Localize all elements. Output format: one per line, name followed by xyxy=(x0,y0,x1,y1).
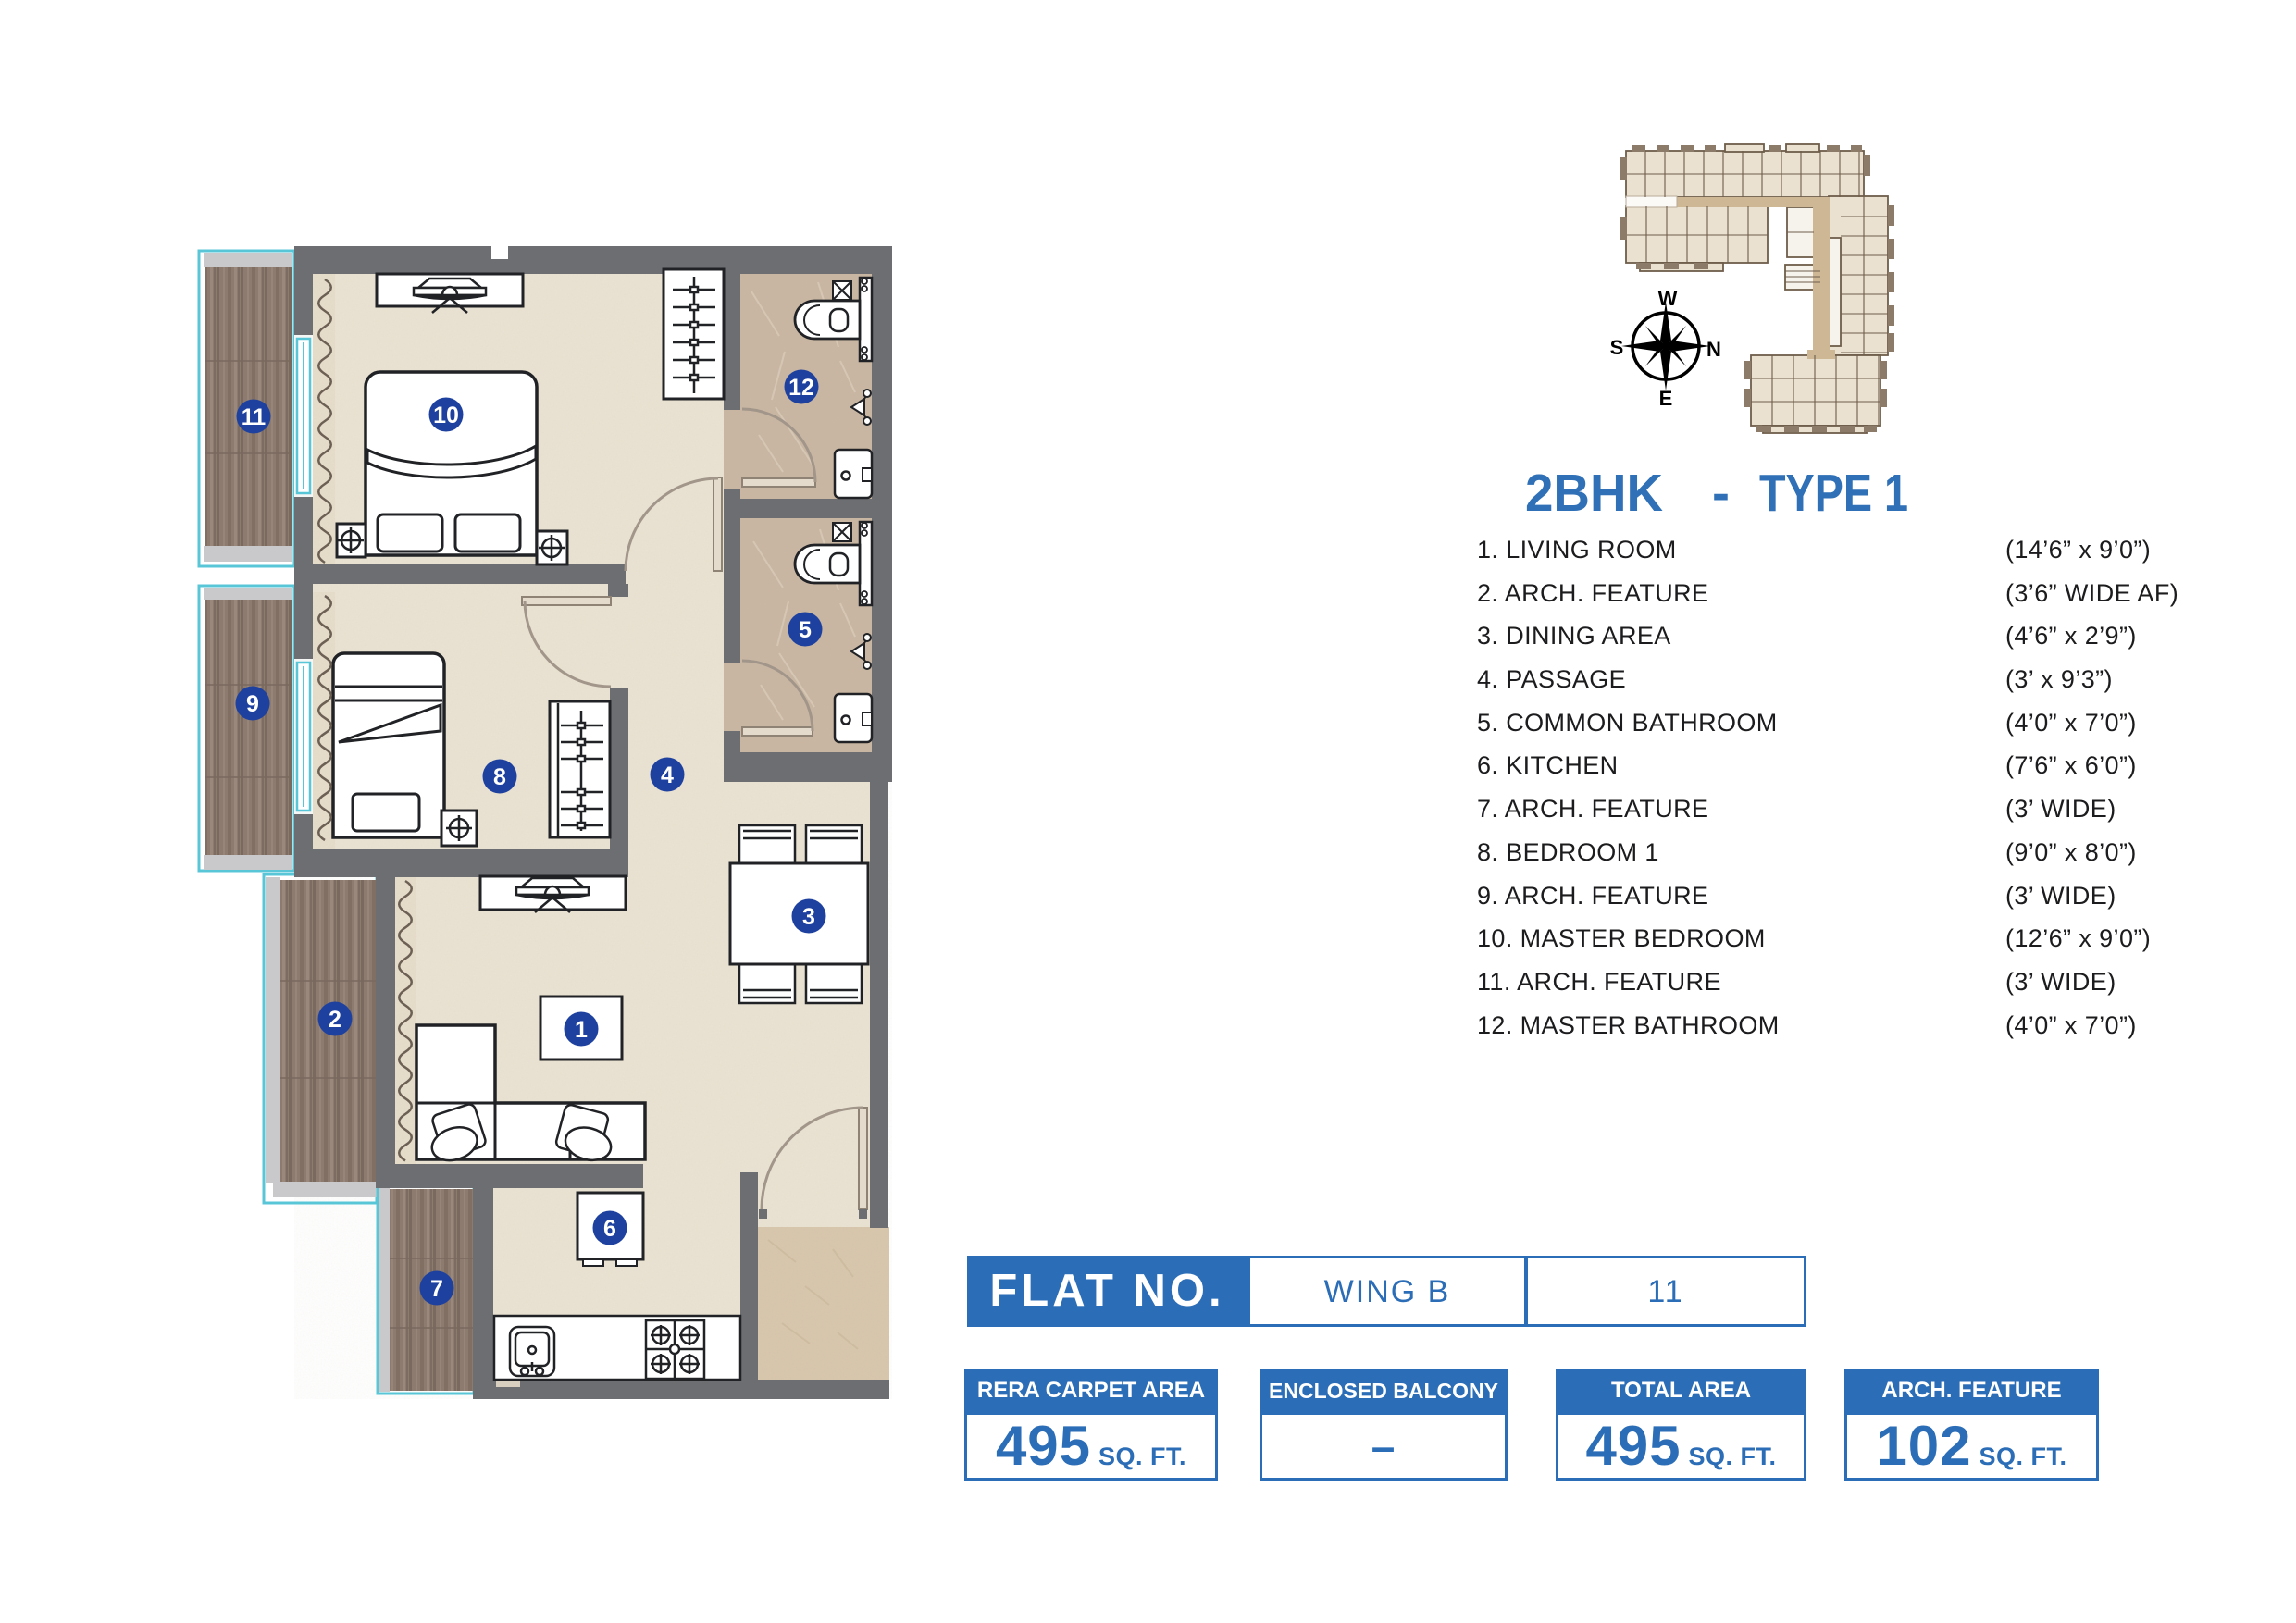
svg-text:5: 5 xyxy=(799,617,812,643)
svg-text:N: N xyxy=(1706,338,1721,361)
svg-text:2: 2 xyxy=(329,1007,341,1033)
svg-text:9: 9 xyxy=(246,691,259,717)
svg-text:8: 8 xyxy=(493,764,506,790)
svg-text:S: S xyxy=(1610,336,1624,359)
svg-text:12: 12 xyxy=(788,375,814,401)
svg-text:11: 11 xyxy=(242,404,267,430)
svg-text:1: 1 xyxy=(575,1017,588,1043)
svg-text:E: E xyxy=(1659,387,1673,410)
svg-text:W: W xyxy=(1658,287,1678,310)
svg-text:3: 3 xyxy=(802,904,815,930)
svg-text:10: 10 xyxy=(433,403,459,428)
svg-text:7: 7 xyxy=(430,1276,443,1302)
svg-text:4: 4 xyxy=(661,762,674,788)
svg-text:6: 6 xyxy=(603,1216,616,1242)
